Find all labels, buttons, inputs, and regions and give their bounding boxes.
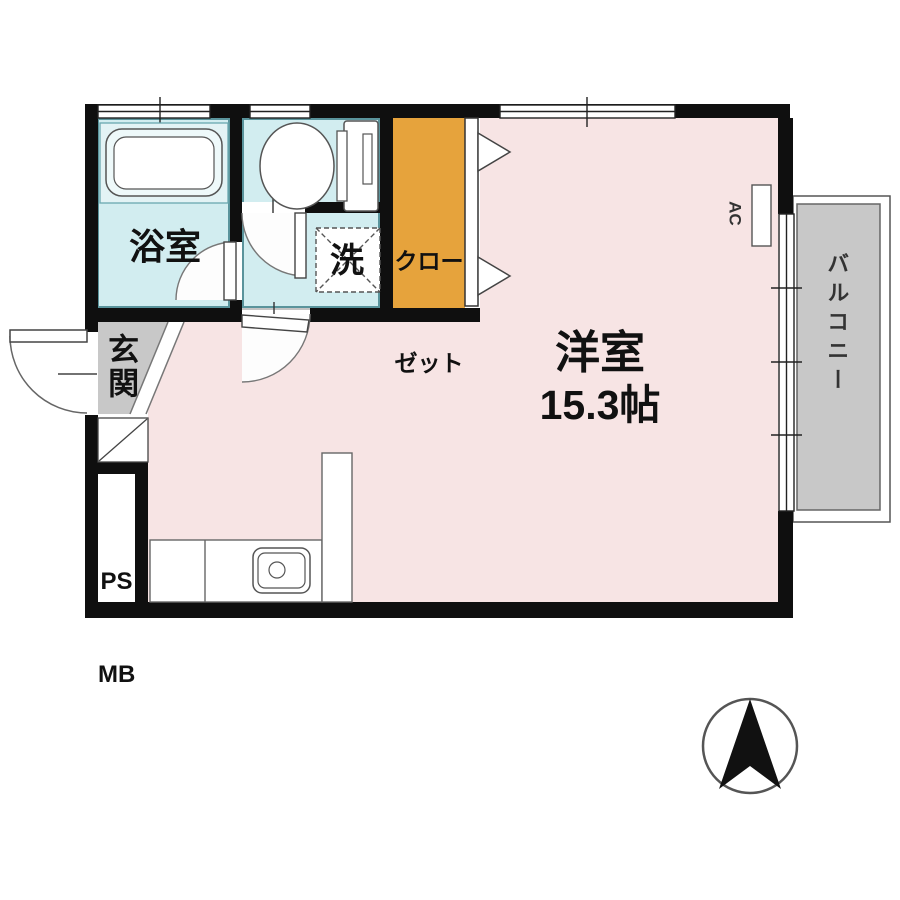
main-room-size: 15.3帖 (465, 383, 735, 428)
bathroom-label: 浴室 (105, 227, 225, 267)
kitchen-counter (150, 453, 352, 602)
washroom-main-door (242, 314, 310, 382)
closet-label-line2: ゼット (392, 346, 466, 380)
window-main-room-top (500, 97, 675, 127)
floor-plan-linework (0, 0, 900, 900)
toilet-icon (260, 121, 378, 211)
kitchen-sink-icon (253, 548, 310, 593)
ps-label: PS (98, 566, 135, 597)
balcony-label: バルコニー (824, 252, 848, 397)
closet-label-line1: クロー (392, 244, 466, 278)
entrance-door (10, 330, 87, 413)
closet-label: クロー ゼット (392, 176, 466, 448)
ac-label: AC (725, 201, 744, 226)
laundry-label: 洗 (330, 243, 364, 280)
utility-shaft-label: PS MB (98, 504, 135, 752)
closet-folding-door (465, 118, 510, 306)
ac-unit (752, 185, 771, 246)
mb-label: MB (98, 659, 135, 690)
toilet-door (242, 213, 306, 278)
bathtub-icon (100, 123, 228, 203)
shoe-cabinet (98, 418, 148, 462)
entrance-label: 玄関 (103, 333, 137, 401)
north-arrow-icon (703, 699, 797, 793)
main-room-label: 洋室 (480, 328, 720, 378)
window-washroom (250, 105, 310, 118)
floor-plan: 浴室 洗 クロー ゼット 洋室 15.3帖 玄関 PS MB バルコニー AC (0, 0, 900, 900)
